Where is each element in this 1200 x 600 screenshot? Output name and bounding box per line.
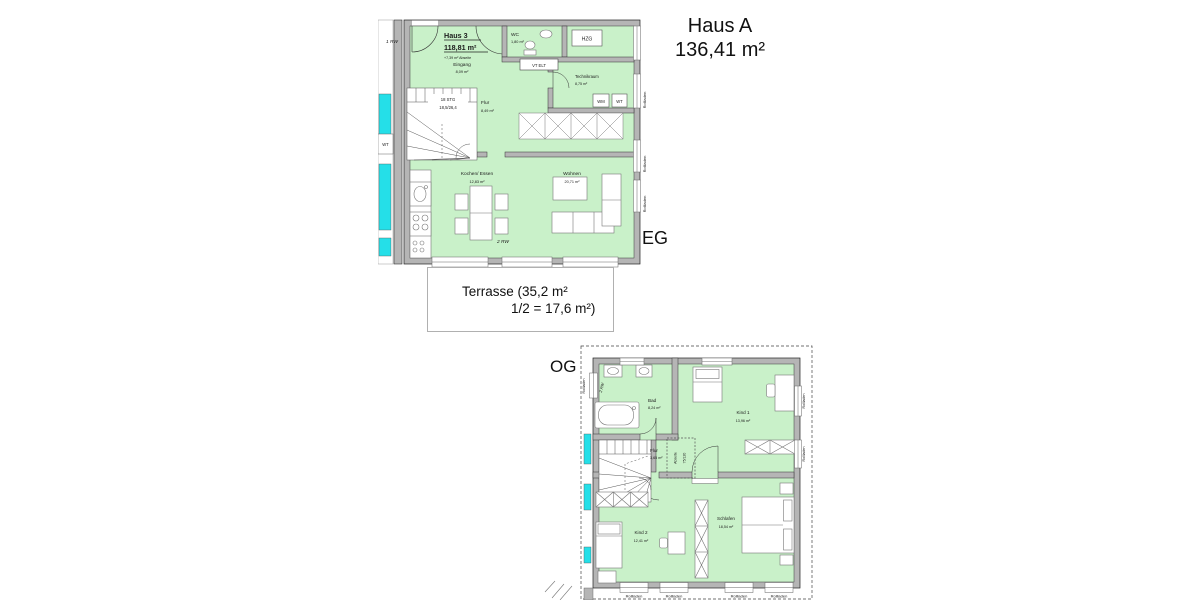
og-ground-hatch	[545, 581, 572, 600]
eg-room-wc-name: WC	[511, 32, 520, 38]
og-room-schlafen-name: Schlafen	[717, 516, 735, 521]
og-rollladen-bottom-2: Rollladen	[666, 594, 683, 599]
eg-area-note: +7,39 m² Abseite	[444, 56, 471, 60]
og-abseite-line1: Abseite	[674, 452, 678, 464]
neighbor-wt-label: WT	[382, 142, 389, 147]
og-room-flur-area: 3,65 m²	[650, 456, 663, 460]
og-abseite-line2: 75/120	[683, 453, 687, 464]
eg-room-eingang-area: 8,09 m²	[456, 70, 470, 74]
og-neighbor-strip	[584, 434, 593, 600]
eg-rollladen-right-1: Rollladen	[642, 92, 647, 109]
og-room-bad-area: 8,24 m²	[648, 406, 661, 410]
og-room-flur-name: Flur	[650, 448, 658, 453]
eg-room-kochen-area: 12,83 m²	[470, 180, 486, 184]
eg-room-wc-area: 1,80 m²	[511, 40, 525, 44]
eg-wt-label: WT	[616, 99, 623, 104]
floorplan-page: WT	[0, 0, 1200, 600]
og-floorplan: Rollladen 2 RW	[540, 342, 840, 600]
og-rollladen-bottom-1: Rollladen	[626, 594, 643, 599]
eg-room-wohnen-area: 20,71 m²	[565, 180, 581, 184]
haus-a-title-block: Haus A 136,41 m²	[655, 14, 785, 62]
og-room-schlafen-area: 18,54 m²	[719, 525, 734, 529]
eg-room-flur-area: 8,49 m²	[481, 109, 495, 113]
eg-room-technik-area: 8,75 m²	[575, 82, 588, 86]
eg-hzg-label: HZG	[582, 37, 593, 43]
eg-kitchen-counter	[410, 170, 431, 258]
og-rollladen-right-1: Rollladen	[802, 394, 806, 409]
eg-rw2-label: 2 RW	[496, 239, 509, 245]
og-left-window	[590, 373, 598, 398]
terrasse-line2: 1/2 = 17,6 m²)	[511, 300, 613, 317]
eg-bottom-windows	[432, 257, 618, 267]
eg-closet-row	[519, 113, 623, 139]
eg-rollladen-right-3: Rollladen	[642, 196, 647, 213]
eg-area: 118,81 m²	[444, 43, 477, 52]
eg-title: Haus 3	[444, 31, 468, 40]
eg-floorplan: WT	[378, 12, 668, 274]
og-rollladen-bottom-4: Rollladen	[771, 594, 788, 599]
og-room-bad-name: Bad	[648, 398, 657, 403]
og-rollladen-left: Rollladen	[582, 379, 586, 394]
eg-room-eingang-name: Eingang	[453, 62, 471, 68]
eg-neighbor-strip: WT	[378, 20, 402, 264]
og-room-kind2-area: 12,41 m²	[634, 539, 649, 543]
eg-vtelt-label: VT ELT	[532, 63, 546, 68]
eg-room-kochen-name: Kochen/ Essen	[461, 171, 494, 177]
og-room-kind1-area: 13,96 m²	[736, 419, 751, 423]
eg-room-technik-name: Technikraum	[575, 74, 599, 79]
eg-floor-label: EG	[642, 228, 668, 249]
eg-stairs-line1: 18 STG	[441, 97, 455, 102]
eg-wm-label: WM	[597, 99, 605, 104]
eg-room-wohnen-name: Wohnen	[563, 171, 581, 177]
haus-a-title: Haus A	[655, 14, 785, 38]
og-room-kind2-name: Kind 2	[634, 530, 647, 535]
terrasse-line1: Terrasse (35,2 m²	[462, 283, 613, 300]
og-room-kind1-name: Kind 1	[736, 410, 749, 415]
og-floor-label: OG	[550, 357, 576, 377]
og-rollladen-right-2: Rollladen	[802, 447, 806, 462]
haus-a-area: 136,41 m²	[655, 38, 785, 62]
terrasse-box: Terrasse (35,2 m² 1/2 = 17,6 m²)	[427, 267, 614, 332]
eg-room-flur-name: Flur	[481, 100, 490, 106]
eg-rollladen-right-2: Rollladen	[642, 156, 647, 173]
og-rollladen-bottom-3: Rollladen	[731, 594, 748, 599]
eg-rw1-label: 1 RW	[386, 39, 398, 45]
eg-stairs-line2: 18,5/26,4	[439, 105, 457, 110]
